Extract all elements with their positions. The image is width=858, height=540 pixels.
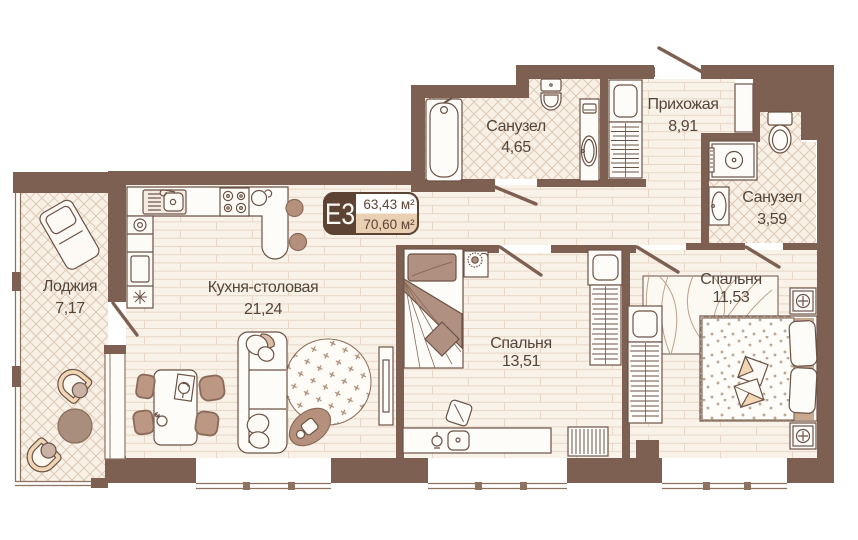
svg-text:3,59: 3,59 xyxy=(757,211,787,228)
svg-text:13,51: 13,51 xyxy=(502,353,541,370)
svg-text:Спальня: Спальня xyxy=(700,271,762,288)
svg-text:21,24: 21,24 xyxy=(244,301,283,318)
svg-text:63,43 м²: 63,43 м² xyxy=(363,197,415,212)
svg-text:7,17: 7,17 xyxy=(55,300,85,317)
svg-text:4,65: 4,65 xyxy=(501,139,531,156)
svg-text:Е3: Е3 xyxy=(325,197,355,231)
svg-text:8,91: 8,91 xyxy=(668,118,698,135)
svg-text:70,60 м²: 70,60 м² xyxy=(363,217,415,232)
svg-text:Санузел: Санузел xyxy=(486,118,546,135)
svg-text:Спальня: Спальня xyxy=(490,335,552,352)
svg-text:Санузел: Санузел xyxy=(742,189,802,206)
svg-text:Кухня-столовая: Кухня-столовая xyxy=(208,279,319,296)
svg-text:Прихожая: Прихожая xyxy=(648,96,719,113)
svg-text:11,53: 11,53 xyxy=(713,289,750,306)
svg-text:Лоджия: Лоджия xyxy=(43,278,97,295)
